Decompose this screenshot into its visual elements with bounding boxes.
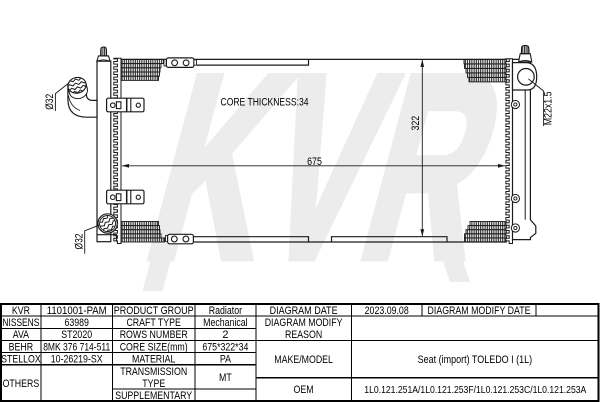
svg-text:63989: 63989: [64, 317, 89, 329]
svg-text:AVA: AVA: [13, 329, 30, 341]
svg-text:NISSENS: NISSENS: [2, 317, 39, 329]
svg-text:OEM: OEM: [294, 384, 314, 396]
svg-text:Radiator: Radiator: [209, 305, 243, 317]
svg-text:ROWS NUMBER: ROWS NUMBER: [120, 329, 188, 341]
svg-text:CORE SIZE(mm): CORE SIZE(mm): [120, 341, 188, 353]
svg-text:REASON: REASON: [285, 329, 322, 341]
svg-text:TRANSMISSION: TRANSMISSION: [120, 366, 187, 378]
svg-text:MATERIAL: MATERIAL: [132, 354, 175, 366]
svg-text:1L0.121.251A/1L0.121.253F/1L0.: 1L0.121.251A/1L0.121.253F/1L0.121.253C/1…: [364, 384, 586, 396]
svg-text:Ø32: Ø32: [74, 234, 86, 250]
svg-text:CORE THICKNESS:34: CORE THICKNESS:34: [221, 97, 309, 109]
svg-text:DIAGRAM DATE: DIAGRAM DATE: [270, 305, 338, 317]
svg-text:322: 322: [410, 116, 422, 131]
svg-text:8MK 376 714-511: 8MK 376 714-511: [43, 341, 110, 353]
svg-text:DIAGRAM MODIFY: DIAGRAM MODIFY: [265, 317, 343, 329]
svg-text:CRAFT TYPE: CRAFT TYPE: [126, 317, 181, 329]
svg-text:ST2020: ST2020: [61, 329, 92, 341]
svg-text:Mechanical: Mechanical: [203, 317, 248, 329]
svg-text:2: 2: [222, 329, 228, 341]
svg-text:675: 675: [307, 156, 322, 168]
svg-text:TYPE: TYPE: [142, 378, 165, 390]
svg-text:BEHR: BEHR: [9, 341, 34, 353]
svg-text:KVR: KVR: [12, 305, 30, 317]
svg-text:OTHERS: OTHERS: [3, 378, 40, 390]
svg-text:Seat (import) TOLEDO I (1L): Seat (import) TOLEDO I (1L): [418, 354, 533, 366]
svg-text:675*322*34: 675*322*34: [202, 341, 248, 353]
svg-text:MT: MT: [219, 372, 232, 384]
svg-text:PRODUCT GROUP: PRODUCT GROUP: [114, 305, 194, 317]
svg-text:Ø32: Ø32: [44, 94, 56, 110]
svg-text:PA: PA: [220, 354, 232, 366]
svg-text:2023.09.08: 2023.09.08: [365, 305, 409, 317]
svg-text:1101001-PAM: 1101001-PAM: [47, 305, 107, 317]
svg-text:DIAGRAM MODIFY DATE: DIAGRAM MODIFY DATE: [428, 305, 531, 317]
svg-text:MAKE/MODEL: MAKE/MODEL: [274, 354, 333, 366]
svg-text:M22x1.5: M22x1.5: [543, 92, 555, 126]
svg-text:10-26219-SX: 10-26219-SX: [51, 354, 103, 366]
svg-text:STELLOX: STELLOX: [1, 354, 41, 366]
svg-text:SUPPLEMENTARY: SUPPLEMENTARY: [115, 390, 193, 402]
